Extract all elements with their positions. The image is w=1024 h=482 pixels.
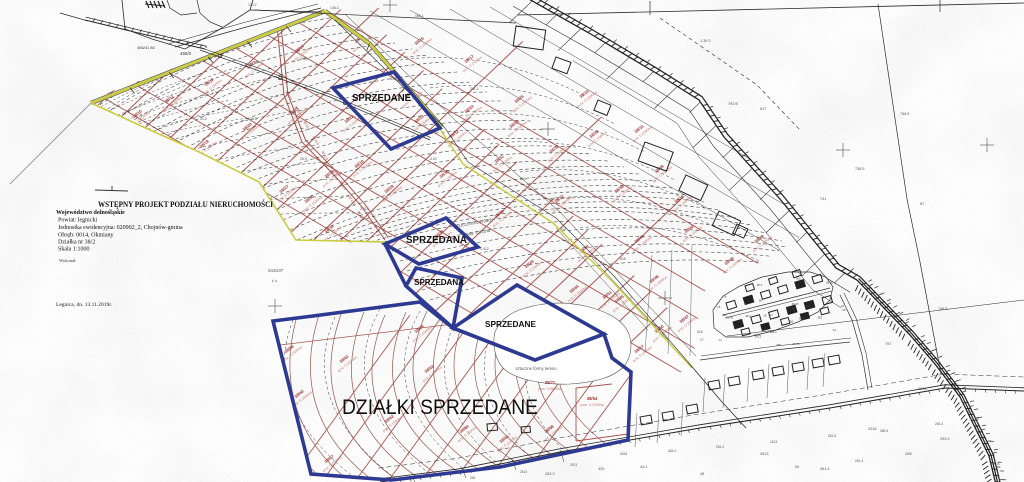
svg-text:793 B: 793 B [728,102,738,106]
svg-text:44.3: 44.3 [640,465,647,469]
svg-text:263.3: 263.3 [545,472,555,476]
svg-text:741: 741 [820,197,826,201]
svg-text:2613: 2613 [760,452,768,456]
svg-text:Legnica, dn. 13.11.2019r.: Legnica, dn. 13.11.2019r. [56,302,113,308]
svg-text:38.2: 38.2 [799,317,805,321]
svg-text:38/54: 38/54 [587,396,598,401]
svg-text:87: 87 [920,202,924,206]
svg-text:26: 26 [717,305,721,309]
svg-text:748.5: 748.5 [900,112,910,116]
svg-text:292.6: 292.6 [990,462,1000,466]
svg-text:41.2: 41.2 [200,117,207,121]
svg-text:28.45: 28.45 [726,316,733,320]
svg-text:17: 17 [700,338,704,342]
svg-text:Jednostka ewidencyjna: 020902_: Jednostka ewidencyjna: 020902_2, Chojnów… [58,225,183,231]
svg-text:261.8: 261.8 [828,434,836,438]
svg-text:382: 382 [818,316,823,320]
svg-text:38/71: 38/71 [545,380,556,385]
svg-text:148.3: 148.3 [330,6,339,10]
svg-text:Powiat: legnicki: Powiat: legnicki [58,218,97,224]
svg-text:456/31 80: 456/31 80 [137,45,156,50]
svg-text:263.4: 263.4 [668,449,676,453]
svg-text:38.2: 38.2 [757,283,763,287]
svg-text:302: 302 [796,277,801,281]
svg-text:261.4: 261.4 [820,467,830,471]
svg-text:26: 26 [792,307,796,311]
svg-text:140.2: 140.2 [248,3,257,7]
svg-text:14: 14 [718,338,722,342]
svg-text:Ł s: Ł s [272,279,277,283]
svg-text:48: 48 [975,417,979,421]
svg-text:Obręb: 0014, Okmiany: Obręb: 0014, Okmiany [58,233,114,239]
svg-text:28.45: 28.45 [826,281,833,285]
svg-text:615: 615 [620,257,626,261]
svg-text:263: 263 [470,476,476,480]
svg-text:757: 757 [885,342,891,346]
svg-text:17: 17 [770,313,774,317]
svg-text:2674: 2674 [570,463,577,467]
svg-text:382: 382 [776,343,781,347]
svg-text:sztuczne formy terenu: sztuczne formy terenu [515,366,557,371]
svg-text:87: 87 [968,410,972,414]
svg-text:2.613: 2.613 [360,207,369,211]
svg-text:Województwo dolnośląskie: Województwo dolnośląskie [56,210,125,216]
svg-text:58: 58 [759,298,763,302]
svg-text:2013: 2013 [300,57,308,61]
svg-text:20.3: 20.3 [300,157,307,161]
svg-text:261.4: 261.4 [855,459,863,463]
svg-text:281.1: 281.1 [470,87,479,91]
svg-text:263.3: 263.3 [935,422,943,426]
svg-text:28.45: 28.45 [792,302,799,306]
svg-text:166.1: 166.1 [415,14,424,18]
svg-text:pow. 0.8500ha: pow. 0.8500ha [538,387,561,391]
svg-text:Skala 1:1000: Skala 1:1000 [58,247,90,253]
svg-text:429: 429 [598,467,604,471]
svg-text:48: 48 [700,472,704,476]
svg-text:DZIAŁKI SPRZEDANE: DZIAŁKI SPRZEDANE [342,396,538,419]
svg-text:617: 617 [760,107,766,111]
svg-text:14: 14 [833,328,837,332]
svg-text:382: 382 [806,304,811,308]
svg-text:26: 26 [842,308,846,312]
svg-text:38.2: 38.2 [745,314,751,318]
svg-text:261.3: 261.3 [716,445,724,449]
svg-text:2018: 2018 [868,427,876,431]
svg-text:WSTĘPNY PROJEKT PODZIAŁU NIERU: WSTĘPNY PROJEKT PODZIAŁU NIERUCHOMOŚCI [98,199,274,209]
svg-text:26: 26 [763,314,767,318]
svg-text:738.5: 738.5 [855,167,865,171]
svg-text:Działka nr 38/2: Działka nr 38/2 [58,240,95,246]
svg-text:2W8: 2W8 [905,452,912,456]
svg-text:24.5: 24.5 [250,117,257,121]
svg-text:SPRZEDANA: SPRZEDANA [414,278,464,287]
svg-text:58: 58 [790,319,794,323]
svg-text:4.02: 4.02 [430,157,437,161]
svg-text:456/2: 456/2 [180,51,192,56]
svg-text:293.3: 293.3 [940,437,950,441]
svg-text:pow. 0.7000ha: pow. 0.7000ha [580,403,603,407]
svg-text:58: 58 [723,294,727,298]
svg-text:280.6: 280.6 [880,429,888,433]
svg-text:SPRZEDANA: SPRZEDANA [406,235,467,246]
svg-text:2613: 2613 [520,470,527,474]
svg-text:2618: 2618 [620,452,627,456]
svg-text:2413: 2413 [770,440,777,444]
svg-text:SPRZEDANE: SPRZEDANE [485,319,536,329]
svg-text:515: 515 [697,330,703,334]
svg-text:Wykonał.: Wykonał. [59,258,76,263]
svg-text:SPRZEDANE: SPRZEDANE [352,93,411,104]
svg-text:K8: K8 [795,465,799,469]
svg-text:28.45: 28.45 [753,333,760,337]
svg-text:1.39.2: 1.39.2 [700,39,711,43]
svg-text:534/207: 534/207 [268,268,284,273]
